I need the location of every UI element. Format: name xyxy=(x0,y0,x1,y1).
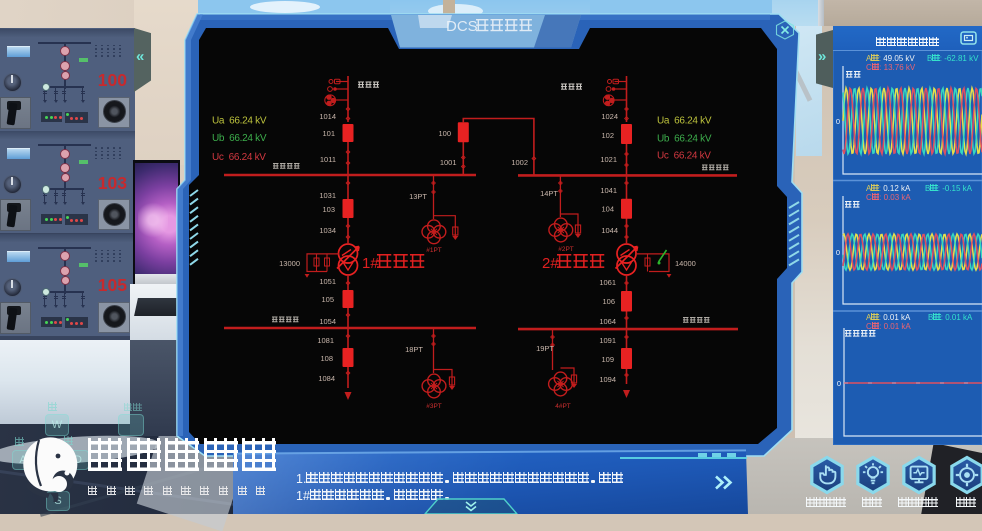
svg-text:Ub 66.24 kV: Ub 66.24 kV xyxy=(657,134,712,145)
svg-text:Uc 66.24 kV: Uc 66.24 kV xyxy=(212,152,266,163)
svg-text:Ua 66.24 kV: Ua 66.24 kV xyxy=(212,116,267,127)
svg-text:0: 0 xyxy=(837,379,841,388)
svg-text:0: 0 xyxy=(836,248,840,257)
svg-text:Ua 66.24 kV: Ua 66.24 kV xyxy=(657,116,712,127)
svg-text:0: 0 xyxy=(836,117,840,126)
svg-text:DCS: DCS xyxy=(446,18,478,35)
svg-text:Uc 66.24 kV: Uc 66.24 kV xyxy=(657,151,711,162)
svg-text:2#: 2# xyxy=(542,255,559,272)
svg-text:1#: 1# xyxy=(362,255,379,272)
svg-text:Ub 66.24 kV: Ub 66.24 kV xyxy=(212,133,267,144)
